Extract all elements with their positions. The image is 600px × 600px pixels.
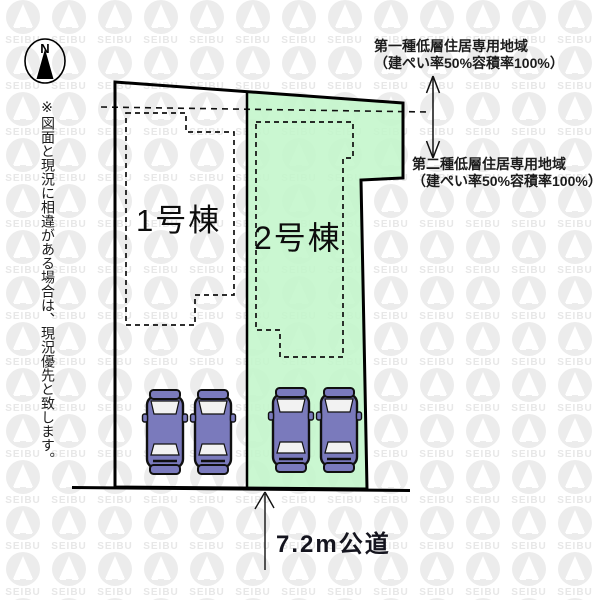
zoning-1-detail: （建ぺい率50%容積率100%） (374, 55, 564, 72)
car-icon (143, 390, 188, 474)
plan-drawing: SEIBU (0, 0, 600, 600)
zoning-2-name: 第二種低層住居専用地域 (412, 156, 600, 173)
disclaimer-note: ※図面と現況に相違がある場合は、現況優先と致します。 (37, 100, 59, 492)
zoning-label-2: 第二種低層住居専用地域 （建ぺい率50%容積率100%） (412, 156, 600, 190)
lot-2-label: 2号棟 (254, 213, 342, 259)
car-icon (317, 388, 362, 472)
site-plan: SEIBU (0, 0, 600, 600)
car-icon (191, 390, 236, 474)
car-icon (269, 388, 314, 472)
road-width-label: 7.2m公道 (276, 524, 391, 559)
lot-1-label: 1号棟 (136, 195, 221, 240)
zoning-2-detail: （建ぺい率50%容積率100%） (412, 173, 600, 190)
zoning-label-1: 第一種低層住居専用地域 （建ぺい率50%容積率100%） (374, 38, 564, 72)
zoning-1-name: 第一種低層住居専用地域 (374, 38, 564, 55)
